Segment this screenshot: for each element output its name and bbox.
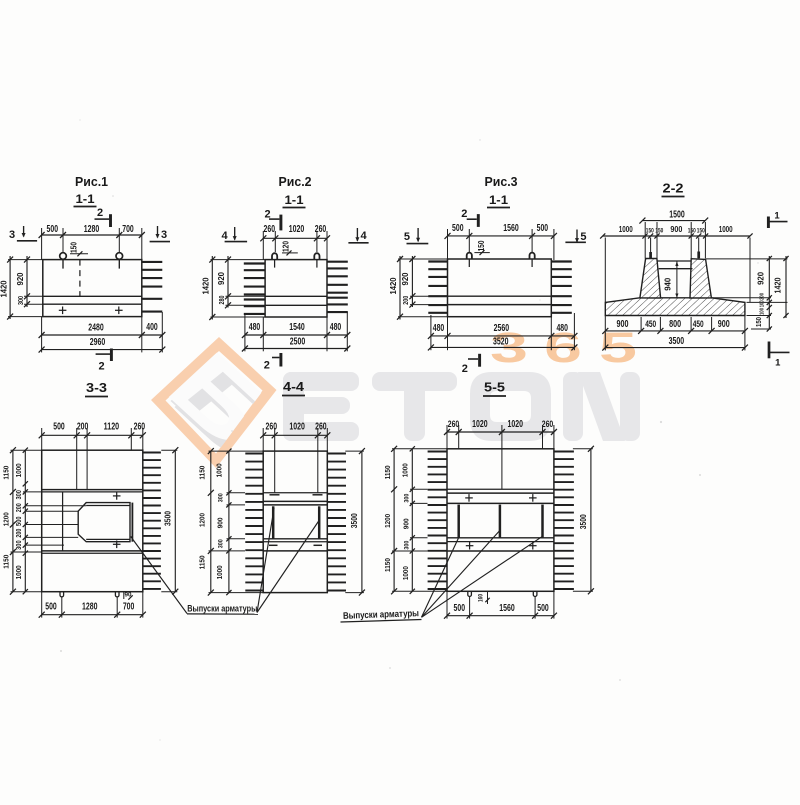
svg-text:3520: 3520 [493, 336, 509, 347]
svg-text:300: 300 [16, 490, 23, 500]
svg-text:2: 2 [462, 363, 468, 375]
svg-text:120: 120 [282, 241, 291, 252]
svg-text:1200: 1200 [197, 513, 206, 527]
svg-text:200: 200 [16, 529, 23, 538]
svg-text:2-2: 2-2 [663, 182, 684, 196]
svg-text:100: 100 [760, 308, 766, 315]
svg-text:900: 900 [403, 518, 410, 529]
svg-text:300: 300 [403, 493, 410, 502]
svg-text:3500: 3500 [164, 511, 173, 526]
svg-text:1150: 1150 [383, 558, 392, 572]
svg-text:920: 920 [757, 271, 766, 285]
svg-text:5: 5 [404, 231, 410, 243]
svg-text:4-4: 4-4 [283, 380, 304, 394]
svg-text:900: 900 [718, 319, 730, 330]
svg-text:1020: 1020 [507, 419, 523, 430]
svg-text:500: 500 [53, 421, 65, 432]
svg-text:280: 280 [219, 295, 226, 304]
svg-text:5: 5 [580, 231, 586, 243]
svg-text:1560: 1560 [499, 603, 515, 614]
svg-text:1280: 1280 [84, 224, 100, 235]
svg-text:1000: 1000 [14, 463, 23, 477]
svg-text:90: 90 [125, 592, 132, 599]
svg-text:300: 300 [18, 296, 25, 305]
svg-text:500: 500 [452, 223, 464, 234]
svg-text:480: 480 [556, 323, 568, 334]
svg-text:4: 4 [222, 230, 229, 242]
svg-text:2: 2 [264, 360, 270, 372]
svg-text:450: 450 [645, 319, 656, 329]
svg-text:500: 500 [16, 516, 23, 526]
svg-text:2500: 2500 [290, 336, 306, 347]
svg-text:3: 3 [161, 229, 167, 241]
svg-text:160: 160 [479, 593, 485, 602]
svg-text:3500: 3500 [579, 514, 588, 529]
svg-text:1420: 1420 [774, 277, 783, 293]
svg-text:800: 800 [669, 319, 681, 330]
svg-text:300: 300 [403, 540, 410, 549]
svg-text:900: 900 [670, 224, 682, 234]
svg-text:1200: 1200 [383, 514, 392, 528]
svg-text:260: 260 [266, 421, 278, 432]
svg-text:1560: 1560 [503, 223, 519, 234]
svg-text:1420: 1420 [0, 280, 9, 298]
svg-text:4: 4 [361, 230, 368, 242]
svg-text:1150: 1150 [1, 466, 10, 480]
svg-text:1200: 1200 [1, 512, 10, 526]
svg-text:1000: 1000 [215, 565, 224, 579]
svg-text:400: 400 [146, 322, 158, 333]
svg-text:1000: 1000 [215, 463, 224, 477]
svg-text:1000: 1000 [619, 224, 633, 234]
svg-text:1120: 1120 [104, 421, 120, 432]
svg-text:3-3: 3-3 [86, 381, 107, 395]
svg-text:Выпуски арматуры: Выпуски арматуры [187, 604, 257, 615]
svg-text:200: 200 [403, 296, 410, 305]
svg-text:200: 200 [16, 503, 23, 512]
svg-text:1540: 1540 [289, 322, 305, 333]
svg-text:Рис.3: Рис.3 [485, 175, 518, 189]
svg-text:150: 150 [697, 227, 705, 234]
svg-text:1000: 1000 [719, 224, 733, 234]
svg-text:1000: 1000 [401, 566, 410, 580]
svg-text:1: 1 [774, 210, 780, 221]
svg-text:260: 260 [315, 421, 327, 432]
svg-text:2: 2 [98, 361, 104, 373]
svg-text:700: 700 [123, 602, 135, 613]
svg-text:300: 300 [217, 493, 224, 502]
svg-text:500: 500 [537, 223, 549, 234]
svg-text:3500: 3500 [350, 513, 359, 528]
svg-text:5-5: 5-5 [484, 381, 505, 395]
svg-text:900: 900 [617, 319, 629, 330]
svg-text:2480: 2480 [88, 323, 104, 334]
svg-text:1: 1 [775, 358, 781, 369]
svg-text:2: 2 [264, 209, 270, 221]
svg-text:1500: 1500 [669, 209, 685, 220]
svg-text:2: 2 [97, 207, 103, 219]
svg-text:1-1: 1-1 [489, 193, 508, 207]
svg-text:260: 260 [448, 419, 460, 430]
svg-text:1020: 1020 [289, 224, 305, 235]
svg-text:150: 150 [688, 227, 696, 234]
svg-text:3: 3 [9, 229, 15, 241]
svg-text:500: 500 [45, 602, 57, 613]
svg-text:1020: 1020 [472, 419, 488, 430]
svg-text:150: 150 [756, 317, 763, 327]
svg-text:1-1: 1-1 [285, 193, 304, 207]
svg-text:1150: 1150 [197, 466, 206, 480]
svg-text:940: 940 [663, 277, 672, 291]
svg-text:1420: 1420 [389, 277, 398, 295]
svg-text:150: 150 [646, 227, 654, 234]
svg-text:1150: 1150 [383, 465, 392, 479]
svg-text:300: 300 [16, 540, 23, 550]
svg-text:700: 700 [122, 224, 134, 235]
svg-text:2: 2 [461, 208, 467, 220]
svg-text:1000: 1000 [401, 463, 410, 477]
svg-text:500: 500 [47, 224, 59, 235]
svg-text:500: 500 [454, 603, 466, 614]
svg-text:500: 500 [537, 603, 549, 614]
svg-text:920: 920 [401, 272, 410, 286]
svg-text:100: 100 [760, 300, 766, 307]
svg-text:1020: 1020 [289, 421, 305, 432]
svg-text:150: 150 [477, 240, 486, 251]
svg-text:Рис.2: Рис.2 [279, 175, 312, 189]
svg-text:920: 920 [217, 271, 226, 285]
svg-text:200: 200 [760, 293, 766, 300]
svg-text:Рис.1: Рис.1 [75, 175, 108, 189]
svg-text:1280: 1280 [82, 602, 98, 613]
svg-text:1420: 1420 [201, 277, 210, 295]
svg-text:900: 900 [217, 517, 224, 528]
svg-text:300: 300 [217, 539, 224, 548]
svg-text:260: 260 [264, 224, 276, 235]
svg-text:150: 150 [70, 242, 79, 253]
svg-text:1150: 1150 [1, 555, 10, 569]
svg-text:260: 260 [542, 419, 554, 430]
svg-text:1000: 1000 [14, 565, 23, 579]
svg-text:480: 480 [249, 322, 261, 333]
svg-text:480: 480 [330, 322, 342, 333]
svg-text:480: 480 [433, 323, 445, 334]
svg-text:920: 920 [16, 272, 25, 286]
svg-text:260: 260 [134, 421, 146, 432]
svg-text:450: 450 [693, 319, 704, 329]
svg-text:3500: 3500 [669, 336, 685, 347]
svg-text:1150: 1150 [197, 555, 206, 569]
svg-text:2960: 2960 [90, 337, 106, 348]
svg-text:1-1: 1-1 [76, 192, 95, 206]
svg-text:2560: 2560 [494, 323, 510, 334]
